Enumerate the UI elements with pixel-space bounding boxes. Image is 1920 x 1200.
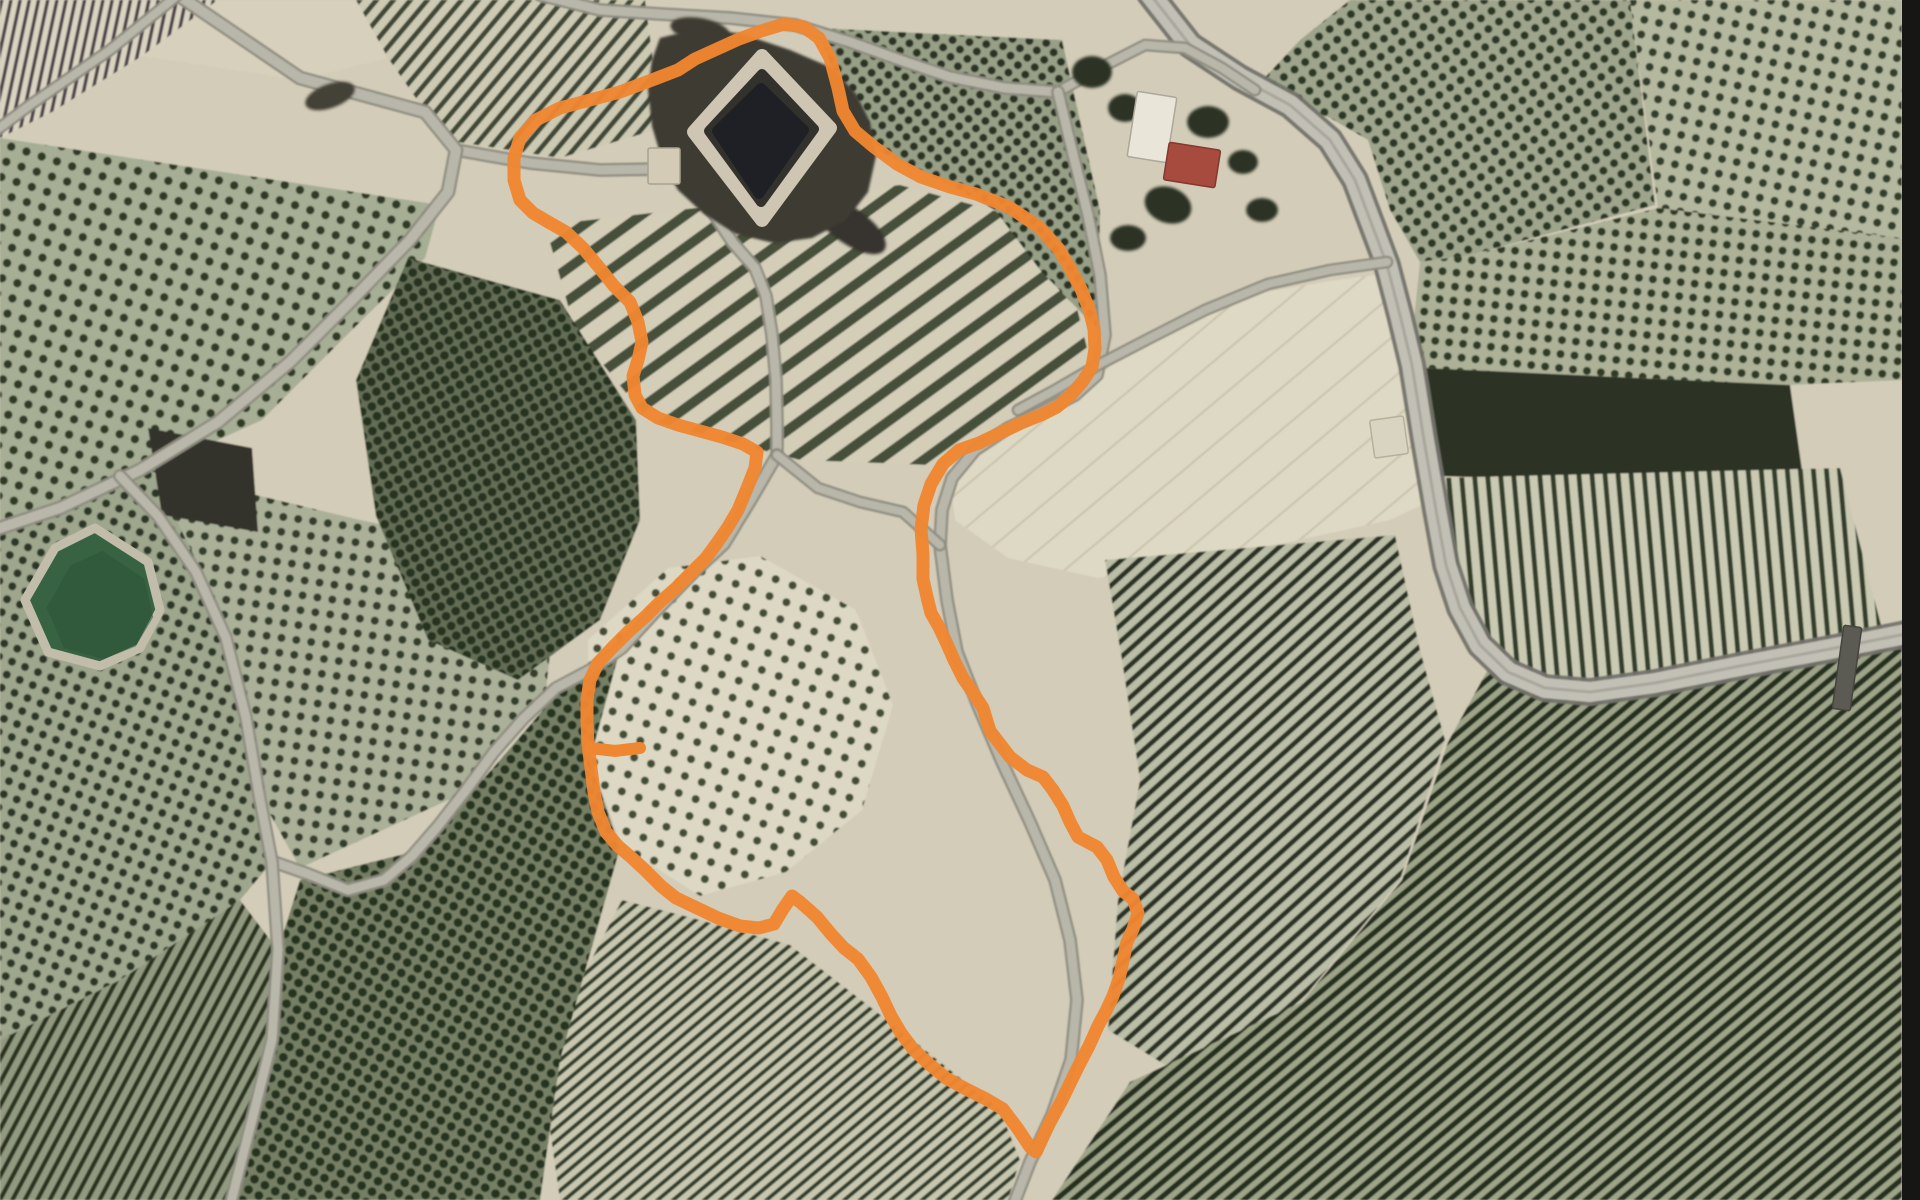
satellite-imagery <box>0 0 1920 1200</box>
satellite-map-view <box>0 0 1920 1200</box>
haze-overlay <box>0 0 1920 1200</box>
